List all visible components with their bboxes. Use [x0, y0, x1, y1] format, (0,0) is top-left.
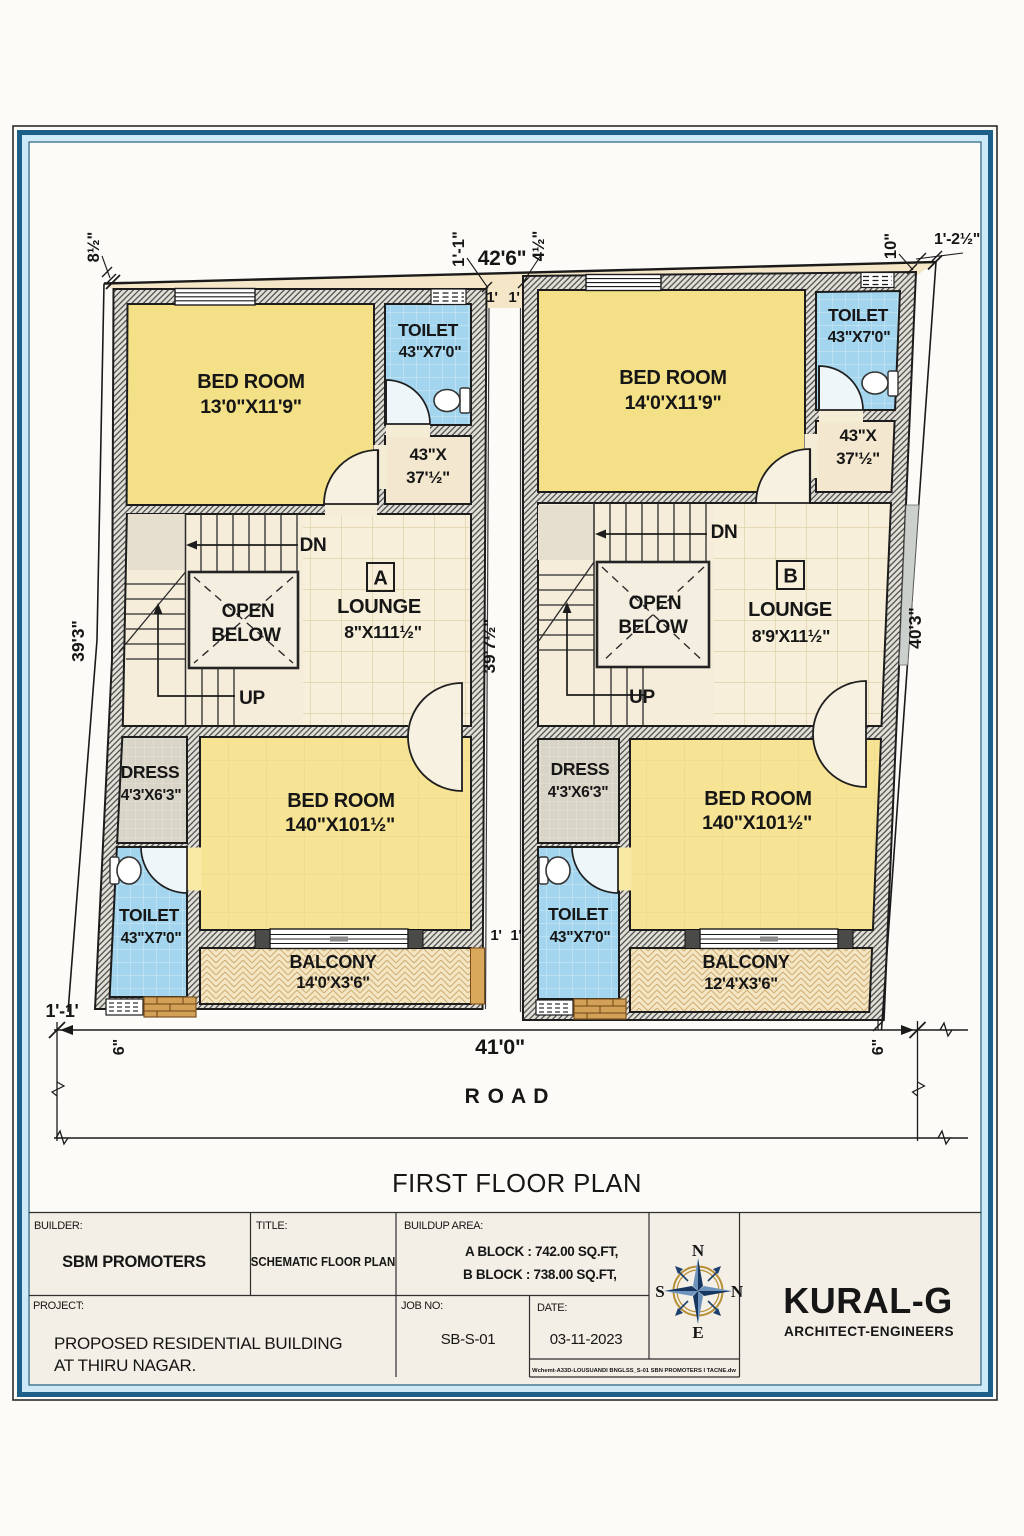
- svg-text:DRESS: DRESS: [551, 759, 610, 779]
- svg-text:R O A D: R O A D: [465, 1085, 550, 1108]
- svg-text:1': 1': [486, 289, 497, 306]
- svg-text:BELOW: BELOW: [618, 617, 688, 638]
- svg-text:40'3": 40'3": [905, 607, 925, 649]
- svg-text:B BLOCK : 738.00 SQ.FT,: B BLOCK : 738.00 SQ.FT,: [463, 1267, 617, 1282]
- svg-text:6": 6": [111, 1039, 128, 1055]
- svg-text:TITLE:: TITLE:: [256, 1220, 287, 1232]
- svg-text:BED ROOM: BED ROOM: [619, 367, 727, 389]
- svg-text:SBM PROMOTERS: SBM PROMOTERS: [62, 1253, 206, 1271]
- svg-text:43"X: 43"X: [839, 426, 877, 445]
- svg-text:OPEN: OPEN: [222, 601, 275, 622]
- svg-text:Wchemt-A33D-LOUSUANDI BNGLSS_S: Wchemt-A33D-LOUSUANDI BNGLSS_S-01 SBN PR…: [532, 1368, 736, 1374]
- svg-text:14'0'X11'9": 14'0'X11'9": [625, 392, 722, 414]
- svg-text:JOB NO:: JOB NO:: [401, 1300, 443, 1312]
- svg-text:12'4'X3'6": 12'4'X3'6": [704, 975, 777, 993]
- svg-text:39'3": 39'3": [68, 620, 88, 662]
- svg-text:37'½": 37'½": [406, 468, 450, 487]
- svg-text:10": 10": [882, 233, 900, 259]
- svg-text:BUILDUP AREA:: BUILDUP AREA:: [404, 1220, 483, 1232]
- svg-text:BELOW: BELOW: [211, 625, 281, 646]
- svg-text:N: N: [692, 1241, 705, 1260]
- svg-text:AT THIRU NAGAR.: AT THIRU NAGAR.: [54, 1356, 196, 1375]
- svg-text:OPEN: OPEN: [629, 593, 682, 614]
- svg-text:6": 6": [870, 1039, 887, 1055]
- svg-text:BALCONY: BALCONY: [703, 952, 790, 972]
- svg-text:BED ROOM: BED ROOM: [287, 790, 395, 812]
- svg-text:LOUNGE: LOUNGE: [337, 596, 421, 618]
- svg-text:43"X7'0": 43"X7'0": [550, 929, 611, 946]
- svg-text:DN: DN: [300, 535, 327, 556]
- svg-text:BALCONY: BALCONY: [290, 952, 377, 972]
- svg-text:TOILET: TOILET: [119, 905, 180, 925]
- svg-text:43"X7'0": 43"X7'0": [828, 329, 891, 346]
- svg-text:39'7½": 39'7½": [480, 619, 499, 674]
- svg-text:13'0"X11'9": 13'0"X11'9": [200, 396, 301, 418]
- svg-text:14'0'X3'6": 14'0'X3'6": [296, 974, 369, 992]
- svg-text:4'3'X6'3": 4'3'X6'3": [121, 787, 182, 804]
- svg-text:140"X101½": 140"X101½": [702, 812, 812, 834]
- svg-text:41'0": 41'0": [475, 1035, 525, 1059]
- svg-text:BED ROOM: BED ROOM: [197, 371, 305, 393]
- svg-text:1': 1': [510, 927, 521, 944]
- svg-text:4'3'X6'3": 4'3'X6'3": [548, 784, 609, 801]
- svg-text:43"X: 43"X: [409, 445, 447, 464]
- svg-text:DATE:: DATE:: [537, 1302, 567, 1314]
- svg-text:FIRST FLOOR PLAN: FIRST FLOOR PLAN: [392, 1170, 642, 1198]
- svg-text:1': 1': [490, 927, 501, 944]
- svg-text:1'-2½": 1'-2½": [934, 231, 980, 248]
- svg-text:B: B: [783, 566, 797, 588]
- svg-text:A: A: [373, 568, 387, 590]
- svg-text:140"X101½": 140"X101½": [285, 814, 395, 836]
- svg-text:4½": 4½": [530, 231, 548, 262]
- svg-text:A BLOCK : 742.00 SQ.FT,: A BLOCK : 742.00 SQ.FT,: [465, 1244, 618, 1259]
- svg-text:KURAL-G: KURAL-G: [783, 1280, 952, 1321]
- svg-text:UP: UP: [629, 687, 655, 708]
- svg-text:E: E: [692, 1323, 703, 1342]
- svg-text:N: N: [731, 1282, 744, 1301]
- svg-text:BED ROOM: BED ROOM: [704, 788, 812, 810]
- svg-text:8½": 8½": [85, 232, 103, 263]
- svg-text:1': 1': [508, 289, 519, 306]
- svg-text:TOILET: TOILET: [398, 320, 459, 340]
- svg-text:DN: DN: [711, 522, 738, 543]
- svg-text:S: S: [655, 1282, 664, 1301]
- svg-text:1'-1': 1'-1': [45, 1001, 78, 1021]
- svg-text:SCHEMATIC FLOOR PLAN: SCHEMATIC FLOOR PLAN: [251, 1254, 396, 1269]
- svg-text:UP: UP: [239, 688, 265, 709]
- svg-text:37'½": 37'½": [836, 449, 880, 468]
- svg-text:SB-S-01: SB-S-01: [441, 1331, 496, 1348]
- svg-text:PROPOSED RESIDENTIAL BUILDING: PROPOSED RESIDENTIAL BUILDING: [54, 1334, 342, 1353]
- svg-text:TOILET: TOILET: [828, 305, 889, 325]
- svg-text:43"X7'0": 43"X7'0": [121, 930, 182, 947]
- svg-text:1'-1": 1'-1": [450, 231, 468, 267]
- svg-text:8'9'X11½": 8'9'X11½": [752, 626, 830, 646]
- svg-text:03-11-2023: 03-11-2023: [550, 1331, 623, 1348]
- svg-text:42'6": 42'6": [478, 247, 527, 270]
- svg-text:LOUNGE: LOUNGE: [748, 599, 832, 621]
- svg-text:8"X111½": 8"X111½": [344, 622, 421, 642]
- svg-text:TOILET: TOILET: [548, 904, 609, 924]
- svg-text:ARCHITECT-ENGINEERS: ARCHITECT-ENGINEERS: [784, 1324, 954, 1339]
- svg-text:BUILDER:: BUILDER:: [34, 1220, 83, 1232]
- svg-text:43"X7'0": 43"X7'0": [399, 344, 462, 361]
- svg-text:PROJECT:: PROJECT:: [33, 1300, 84, 1312]
- svg-text:DRESS: DRESS: [121, 762, 180, 782]
